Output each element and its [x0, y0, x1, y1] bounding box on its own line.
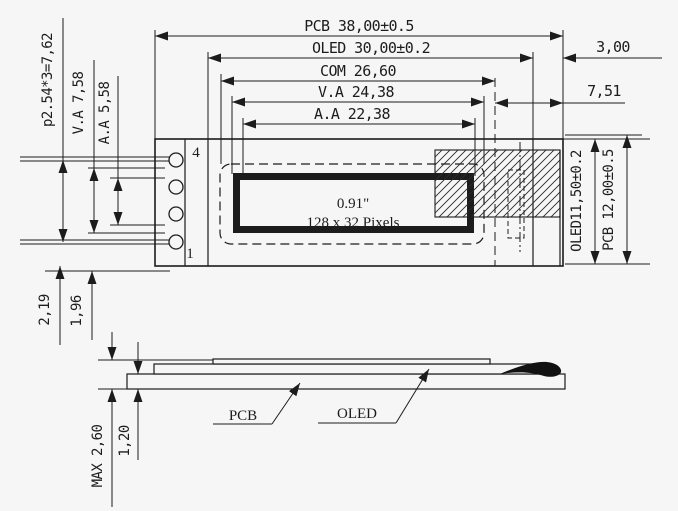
dim-oled-width-label: OLED 30,00±0.2	[312, 39, 430, 57]
pin-1-number: 1	[186, 246, 194, 262]
dim-aa-width-label: A.A 22,38	[314, 105, 390, 123]
pin-holes	[169, 153, 183, 249]
dim-pin-edge-b-label: 1,96	[69, 295, 85, 326]
dim-pin-edge-a-label: 2,19	[37, 294, 53, 325]
driver-ic-hatched-area	[435, 150, 560, 217]
side-oled-label: OLED	[337, 406, 377, 422]
pin-4-hole	[169, 153, 183, 167]
dim-pin-pitch-label: p2.54*3=7,62	[40, 33, 56, 127]
pin-1-hole	[169, 235, 183, 249]
display-resolution-label: 128 x 32 Pixels	[307, 215, 400, 231]
oled-module-drawing-sheet: PCB 38,00±0.5 OLED 30,00±0.2 COM 26,60 V…	[0, 0, 678, 511]
dim-max-thickness-label: MAX 2,60	[90, 425, 106, 488]
dim-oled-height-label: OLED11,50±0.2	[569, 150, 585, 252]
pin-2-hole	[169, 207, 183, 221]
side-pcb-label: PCB	[229, 408, 257, 424]
oled-glass-top-layer	[213, 359, 490, 364]
pcb-side-profile	[127, 374, 565, 389]
dim-pcb-width-label: PCB 38,00±0.5	[304, 17, 414, 35]
dim-pcb-height-label: PCB 12,00±0.5	[601, 149, 617, 251]
dimension-labels: PCB 38,00±0.5 OLED 30,00±0.2 COM 26,60 V…	[37, 17, 630, 487]
dim-va-height-label: V.A 7,58	[71, 72, 87, 135]
dim-edge-gap-label: 3,00	[596, 38, 630, 56]
pin-4-number: 4	[192, 145, 200, 161]
dim-com-width-label: COM 26,60	[320, 62, 396, 80]
dim-right-offset-label: 7,51	[587, 82, 621, 100]
technical-drawing: PCB 38,00±0.5 OLED 30,00±0.2 COM 26,60 V…	[0, 0, 678, 511]
oled-side-profile	[154, 364, 548, 374]
dim-pcb-thickness-label: 1,20	[117, 425, 133, 456]
dim-va-width-label: V.A 24,38	[318, 83, 394, 101]
dim-aa-height-label: A.A 5,58	[97, 82, 113, 145]
display-size-label: 0.91"	[337, 196, 369, 212]
pin-3-hole	[169, 180, 183, 194]
